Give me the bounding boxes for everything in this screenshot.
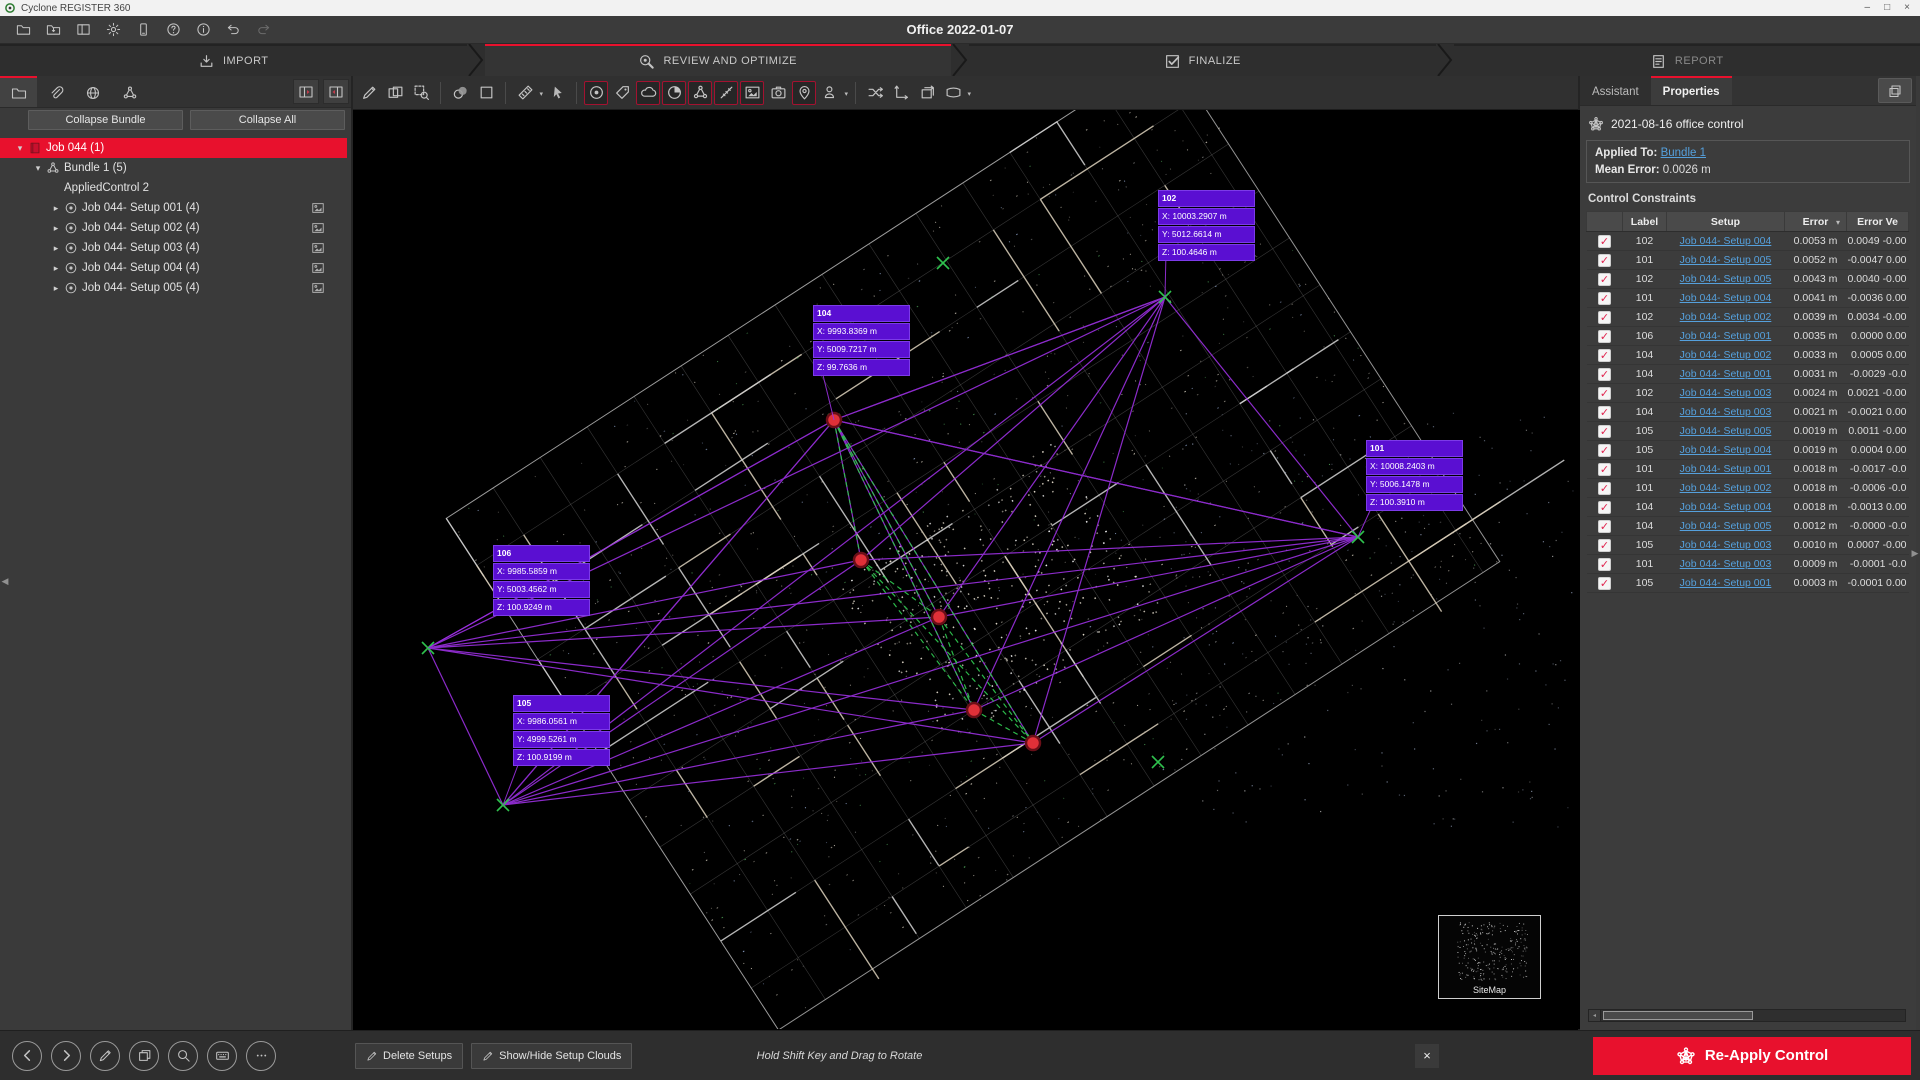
constraint-label: 105 bbox=[1623, 574, 1667, 593]
minimize-button[interactable]: – bbox=[1865, 0, 1871, 16]
constraint-label: 105 bbox=[1623, 422, 1667, 441]
constraint-label: 104 bbox=[1623, 498, 1667, 517]
column-header-Error[interactable]: Error▾ bbox=[1785, 212, 1847, 232]
measure-icon[interactable]: ▾ bbox=[513, 81, 537, 105]
redo-icon[interactable] bbox=[248, 18, 278, 42]
label-id-value: 105 bbox=[513, 695, 610, 712]
shuffle-links-icon[interactable] bbox=[863, 81, 887, 105]
settings-gear-icon[interactable] bbox=[98, 18, 128, 42]
cyclone-register-360-window: Cyclone REGISTER 360 – □ × Office 2022-0… bbox=[0, 0, 1920, 1080]
label-z-value: Z: 99.7636 m bbox=[813, 359, 910, 376]
constraint-error: 0.0043 m bbox=[1785, 270, 1847, 289]
constraint-setup-link[interactable]: Job 044- Setup 002 bbox=[1680, 349, 1772, 361]
camera-icon[interactable] bbox=[766, 81, 790, 105]
constraint-error: 0.0053 m bbox=[1785, 232, 1847, 251]
project-sidebar: Collapse Bundle Collapse All ▾Job 044 (1… bbox=[0, 76, 353, 1030]
tree-item-job-044-setup-004-4-[interactable]: ▸Job 044- Setup 004 (4) bbox=[0, 258, 351, 278]
constraint-setup-link[interactable]: Job 044- Setup 005 bbox=[1680, 520, 1772, 532]
geo-tab[interactable] bbox=[74, 76, 111, 107]
images-toggle-icon[interactable] bbox=[740, 81, 764, 105]
control-label-104[interactable]: 104X: 9993.8369 mY: 5009.7217 mZ: 99.763… bbox=[813, 305, 910, 377]
control-label-101[interactable]: 101X: 10008.2403 mY: 5006.1478 mZ: 100.3… bbox=[1366, 440, 1463, 512]
links-tab[interactable] bbox=[37, 76, 74, 107]
tree-item-job-044-setup-002-4-[interactable]: ▸Job 044- Setup 002 (4) bbox=[0, 218, 351, 238]
constraint-label: 104 bbox=[1623, 517, 1667, 536]
constraint-setup-link[interactable]: Job 044- Setup 003 bbox=[1680, 539, 1772, 551]
panel-hscrollbar[interactable]: ◂ bbox=[1588, 1009, 1906, 1022]
applied-info-box: Applied To: Bundle 1 Mean Error: 0.0026 … bbox=[1586, 140, 1910, 183]
constraint-row[interactable]: ✓106Job 044- Setup 0010.0035 m0.0000 0.0… bbox=[1587, 327, 1909, 346]
setup-point bbox=[854, 553, 868, 567]
bundle-tab[interactable] bbox=[111, 76, 148, 107]
label-x-value: X: 9993.8369 m bbox=[813, 323, 910, 340]
control-point-marker bbox=[937, 257, 949, 269]
constraint-row[interactable]: ✓101Job 044- Setup 0050.0052 m-0.0047 0.… bbox=[1587, 251, 1909, 270]
constraint-checkbox[interactable]: ✓ bbox=[1598, 254, 1611, 267]
setups-icon bbox=[62, 281, 80, 295]
constraint-row[interactable]: ✓104Job 044- Setup 0020.0033 m0.0005 0.0… bbox=[1587, 346, 1909, 365]
constraint-checkbox[interactable]: ✓ bbox=[1598, 577, 1611, 590]
tree-item-job-044-setup-001-4-[interactable]: ▸Job 044- Setup 001 (4) bbox=[0, 198, 351, 218]
workflow-bar: IMPORTREVIEW AND OPTIMIZEFINALIZEREPORT bbox=[0, 44, 1920, 76]
tree-caret[interactable]: ▸ bbox=[50, 203, 62, 214]
label-z-value: Z: 100.9249 m bbox=[493, 599, 590, 616]
tree-item-job-044-1-[interactable]: ▾Job 044 (1) bbox=[0, 138, 347, 158]
constraint-row[interactable]: ✓101Job 044- Setup 0010.0018 m-0.0017 -0… bbox=[1587, 460, 1909, 479]
constraint-setup-link[interactable]: Job 044- Setup 004 bbox=[1680, 501, 1772, 513]
constraint-setup-link[interactable]: Job 044- Setup 002 bbox=[1680, 482, 1772, 494]
undo-icon[interactable] bbox=[218, 18, 248, 42]
document-title: Office 2022-01-07 bbox=[0, 22, 1920, 37]
viewport-toolbar: ▾▾▾ bbox=[353, 76, 1578, 110]
constraint-checkbox[interactable]: ✓ bbox=[1598, 311, 1611, 324]
setup-image-icon[interactable] bbox=[311, 221, 325, 235]
constraint-error-vector: -0.0036 0.00 bbox=[1847, 289, 1909, 308]
tree-caret[interactable]: ▸ bbox=[50, 283, 62, 294]
constraint-row[interactable]: ✓105Job 044- Setup 0050.0019 m0.0011 -0.… bbox=[1587, 422, 1909, 441]
label-id-value: 104 bbox=[813, 305, 910, 322]
constraint-checkbox[interactable]: ✓ bbox=[1598, 501, 1611, 514]
workflow-tab-review-and-optimize[interactable]: REVIEW AND OPTIMIZE bbox=[485, 44, 952, 76]
app-title: Cyclone REGISTER 360 bbox=[21, 3, 131, 14]
tree-item-label: Bundle 1 (5) bbox=[62, 162, 127, 174]
constraint-error: 0.0019 m bbox=[1785, 422, 1847, 441]
help-icon[interactable] bbox=[158, 18, 188, 42]
constraint-checkbox[interactable]: ✓ bbox=[1598, 463, 1611, 476]
show-hide-setup-clouds-button[interactable]: Show/Hide Setup Clouds bbox=[471, 1043, 632, 1069]
control-label-102[interactable]: 102X: 10003.2907 mY: 5012.6614 mZ: 100.4… bbox=[1158, 190, 1255, 262]
constraint-error: 0.0052 m bbox=[1785, 251, 1847, 270]
project-explorer-tab[interactable] bbox=[0, 76, 37, 107]
tree-item-label: AppliedControl 2 bbox=[62, 182, 149, 194]
setups-icon bbox=[62, 201, 80, 215]
constraint-error-vector: 0.0004 0.00 bbox=[1847, 441, 1909, 460]
constraint-row[interactable]: ✓105Job 044- Setup 0030.0010 m0.0007 -0.… bbox=[1587, 536, 1909, 555]
storage-icon[interactable] bbox=[128, 18, 158, 42]
import-project-icon[interactable] bbox=[38, 18, 68, 42]
split-view-icon[interactable] bbox=[383, 81, 407, 105]
properties-tabstrip: AssistantProperties bbox=[1580, 76, 1916, 106]
menubar: Office 2022-01-07 bbox=[0, 16, 1920, 44]
control-label-106[interactable]: 106X: 9985.5859 mY: 5003.4562 mZ: 100.92… bbox=[493, 545, 590, 617]
delete-setups-button[interactable]: Delete Setups bbox=[355, 1043, 463, 1069]
constraint-error-vector: -0.0006 -0.0 bbox=[1847, 479, 1909, 498]
constraint-label: 101 bbox=[1623, 251, 1667, 270]
constraint-label: 105 bbox=[1623, 536, 1667, 555]
constraint-error: 0.0019 m bbox=[1785, 441, 1847, 460]
constraint-checkbox[interactable]: ✓ bbox=[1598, 520, 1611, 533]
bottom-bar: Delete Setups Show/Hide Setup Clouds Hol… bbox=[0, 1030, 1920, 1080]
constraint-checkbox[interactable]: ✓ bbox=[1598, 273, 1611, 286]
tree-caret[interactable]: ▾ bbox=[14, 143, 26, 154]
workflow-tab-label: REVIEW AND OPTIMIZE bbox=[663, 55, 797, 67]
back-button[interactable] bbox=[12, 1041, 42, 1071]
label-id-value: 101 bbox=[1366, 440, 1463, 457]
edit-button[interactable] bbox=[90, 1041, 120, 1071]
constraint-error-vector: -0.0017 -0.0 bbox=[1847, 460, 1909, 479]
review-icon bbox=[638, 53, 655, 70]
constraint-error-vector: 0.0011 -0.00 bbox=[1847, 422, 1909, 441]
rotate-image-icon[interactable] bbox=[915, 81, 939, 105]
tags-toggle-icon[interactable] bbox=[610, 81, 634, 105]
collapse-all-button[interactable]: Collapse All bbox=[190, 110, 345, 130]
constraint-error: 0.0024 m bbox=[1785, 384, 1847, 403]
setup-point bbox=[932, 610, 946, 624]
constraint-error-vector: -0.0001 -0.0 bbox=[1847, 555, 1909, 574]
constraint-label: 102 bbox=[1623, 384, 1667, 403]
select-cursor-icon[interactable] bbox=[545, 81, 569, 105]
constraint-error: 0.0009 m bbox=[1785, 555, 1847, 574]
tree-caret[interactable]: ▸ bbox=[50, 243, 62, 254]
constraint-row[interactable]: ✓101Job 044- Setup 0020.0018 m-0.0006 -0… bbox=[1587, 479, 1909, 498]
control-bundle-icon bbox=[1588, 116, 1604, 132]
tree-caret[interactable]: ▸ bbox=[50, 263, 62, 274]
constraint-setup-link[interactable]: Job 044- Setup 004 bbox=[1680, 235, 1772, 247]
expand-all-icon[interactable] bbox=[293, 79, 319, 104]
tree-item-job-044-setup-003-4-[interactable]: ▸Job 044- Setup 003 (4) bbox=[0, 238, 351, 258]
finalize-icon bbox=[1164, 53, 1181, 70]
workflow-tab-import[interactable]: IMPORT bbox=[0, 44, 467, 76]
constraint-row[interactable]: ✓104Job 044- Setup 0050.0012 m-0.0000 -0… bbox=[1587, 517, 1909, 536]
constraint-error: 0.0010 m bbox=[1785, 536, 1847, 555]
constraint-row[interactable]: ✓104Job 044- Setup 0040.0018 m-0.0013 0.… bbox=[1587, 498, 1909, 517]
tree-item-label: Job 044 (1) bbox=[44, 142, 104, 154]
constraint-checkbox[interactable]: ✓ bbox=[1598, 387, 1611, 400]
constraint-label: 104 bbox=[1623, 365, 1667, 384]
titlebar: Cyclone REGISTER 360 – □ × bbox=[0, 0, 1920, 16]
tree-item-label: Job 044- Setup 002 (4) bbox=[80, 222, 200, 234]
constraint-row[interactable]: ✓102Job 044- Setup 0020.0039 m0.0034 -0.… bbox=[1587, 308, 1909, 327]
point-cloud-canvas[interactable]: SiteMap 102X: 10003.2907 mY: 5012.6614 m… bbox=[353, 110, 1580, 1029]
mean-error-value: 0.0026 m bbox=[1663, 164, 1711, 176]
setup-image-icon[interactable] bbox=[311, 281, 325, 295]
tree-item-job-044-setup-005-4-[interactable]: ▸Job 044- Setup 005 (4) bbox=[0, 278, 351, 298]
constraint-checkbox[interactable]: ✓ bbox=[1598, 235, 1611, 248]
constraint-label: 101 bbox=[1623, 289, 1667, 308]
mean-error-label: Mean Error: bbox=[1595, 164, 1660, 176]
reapply-control-button[interactable]: Re-Apply Control bbox=[1593, 1037, 1911, 1075]
constraint-setup-link[interactable]: Job 044- Setup 001 bbox=[1680, 330, 1772, 342]
tree-item-label: Job 044- Setup 005 (4) bbox=[80, 282, 200, 294]
constraint-setup-link[interactable]: Job 044- Setup 003 bbox=[1680, 406, 1772, 418]
label-id-value: 106 bbox=[493, 545, 590, 562]
constraint-error-vector: -0.0000 -0.0 bbox=[1847, 517, 1909, 536]
constraint-setup-link[interactable]: Job 044- Setup 001 bbox=[1680, 368, 1772, 380]
column-header-Error Ve[interactable]: Error Ve bbox=[1847, 212, 1909, 232]
constraint-error: 0.0003 m bbox=[1785, 574, 1847, 593]
setup-image-icon[interactable] bbox=[311, 201, 325, 215]
label-y-value: Y: 5012.6614 m bbox=[1158, 226, 1255, 243]
workflow-tab-finalize[interactable]: FINALIZE bbox=[969, 44, 1436, 76]
chevron-divider bbox=[1436, 44, 1454, 76]
constraint-setup-link[interactable]: Job 044- Setup 005 bbox=[1680, 254, 1772, 266]
setup-point bbox=[1026, 736, 1040, 750]
column-header-Setup[interactable]: Setup bbox=[1667, 212, 1785, 232]
constraint-error-vector: 0.0005 0.00 bbox=[1847, 346, 1909, 365]
chevron-divider bbox=[951, 44, 969, 76]
book-icon bbox=[26, 141, 44, 155]
properties-panel: AssistantProperties 2021-08-16 office co… bbox=[1580, 76, 1916, 1030]
tree-item-appliedcontrol-2[interactable]: AppliedControl 2 bbox=[0, 178, 351, 198]
import-icon bbox=[198, 53, 215, 70]
constraint-error: 0.0018 m bbox=[1785, 479, 1847, 498]
tree-item-bundle-1-5-[interactable]: ▾Bundle 1 (5) bbox=[0, 158, 351, 178]
hscroll-thumb[interactable] bbox=[1603, 1011, 1753, 1020]
bundle-toggle-icon[interactable] bbox=[688, 81, 712, 105]
maximize-button[interactable]: □ bbox=[1884, 0, 1890, 16]
links-toggle-icon[interactable] bbox=[714, 81, 738, 105]
viewport: ▾▾▾ SiteMap 102X: 10003.2907 mY: 5012.66… bbox=[353, 76, 1580, 1030]
collapse-bundle-button[interactable]: Collapse Bundle bbox=[28, 110, 183, 130]
label-z-value: Z: 100.9199 m bbox=[513, 749, 610, 766]
column-header-check[interactable] bbox=[1587, 212, 1623, 232]
sitemap-inset[interactable]: SiteMap bbox=[1438, 915, 1541, 999]
toolbar-divider bbox=[576, 82, 577, 104]
constraint-error-vector: 0.0007 -0.00 bbox=[1847, 536, 1909, 555]
constraint-row[interactable]: ✓101Job 044- Setup 0040.0041 m-0.0036 0.… bbox=[1587, 289, 1909, 308]
forward-button[interactable] bbox=[51, 1041, 81, 1071]
control-constraints-title: Control Constraints bbox=[1588, 193, 1910, 205]
bundle-network-icon bbox=[1676, 1046, 1696, 1066]
tree-caret[interactable]: ▾ bbox=[32, 163, 44, 174]
workflow-tab-label: IMPORT bbox=[223, 55, 269, 67]
report-icon bbox=[1650, 53, 1667, 70]
control-point-marker bbox=[1152, 756, 1164, 768]
constraint-checkbox[interactable]: ✓ bbox=[1598, 349, 1611, 362]
constraint-setup-link[interactable]: Job 044- Setup 004 bbox=[1680, 292, 1772, 304]
constraint-label: 104 bbox=[1623, 346, 1667, 365]
label-x-value: X: 10003.2907 m bbox=[1158, 208, 1255, 225]
info-icon[interactable] bbox=[188, 18, 218, 42]
label-id-value: 102 bbox=[1158, 190, 1255, 207]
app-logo-icon bbox=[4, 2, 16, 14]
edit-badge-icon bbox=[366, 1050, 378, 1062]
constraint-setup-link[interactable]: Job 044- Setup 004 bbox=[1680, 444, 1772, 456]
axes-icon[interactable] bbox=[889, 81, 913, 105]
constraint-setup-link[interactable]: Job 044- Setup 001 bbox=[1680, 577, 1772, 589]
constraint-error: 0.0031 m bbox=[1785, 365, 1847, 384]
left-panel-collapse-arrow[interactable]: ◀ bbox=[0, 568, 10, 594]
panel-layout-icon[interactable] bbox=[1878, 78, 1912, 103]
label-y-value: Y: 5009.7217 m bbox=[813, 341, 910, 358]
right-panel-collapse-arrow[interactable]: ▶ bbox=[1910, 540, 1920, 566]
constraint-row[interactable]: ✓104Job 044- Setup 0010.0031 m-0.0029 -0… bbox=[1587, 365, 1909, 384]
constraint-label: 106 bbox=[1623, 327, 1667, 346]
constraint-row[interactable]: ✓102Job 044- Setup 0030.0024 m0.0021 -0.… bbox=[1587, 384, 1909, 403]
constraint-checkbox[interactable]: ✓ bbox=[1598, 539, 1611, 552]
setups-icon bbox=[62, 241, 80, 255]
constraint-error: 0.0018 m bbox=[1785, 460, 1847, 479]
constraint-checkbox[interactable]: ✓ bbox=[1598, 406, 1611, 419]
constraint-error: 0.0039 m bbox=[1785, 308, 1847, 327]
tree-item-label: Job 044- Setup 004 (4) bbox=[80, 262, 200, 274]
constraint-setup-link[interactable]: Job 044- Setup 003 bbox=[1680, 558, 1772, 570]
tree-item-label: Job 044- Setup 003 (4) bbox=[80, 242, 200, 254]
label-x-value: X: 9985.5859 m bbox=[493, 563, 590, 580]
constraint-label: 105 bbox=[1623, 441, 1667, 460]
constraint-error: 0.0018 m bbox=[1785, 498, 1847, 517]
keyboard-button[interactable] bbox=[207, 1041, 237, 1071]
constraint-setup-link[interactable]: Job 044- Setup 003 bbox=[1680, 387, 1772, 399]
constraint-error-vector: -0.0047 0.00 bbox=[1847, 251, 1909, 270]
constraint-row[interactable]: ✓102Job 044- Setup 0050.0043 m0.0040 -0.… bbox=[1587, 270, 1909, 289]
dismiss-hint-button[interactable]: × bbox=[1415, 1044, 1439, 1068]
toolbar-divider bbox=[505, 82, 506, 104]
constraint-checkbox[interactable]: ✓ bbox=[1598, 482, 1611, 495]
constraint-row[interactable]: ✓104Job 044- Setup 0030.0021 m-0.0021 0.… bbox=[1587, 403, 1909, 422]
applied-to-link[interactable]: Bundle 1 bbox=[1661, 147, 1706, 159]
constraint-checkbox[interactable]: ✓ bbox=[1598, 425, 1611, 438]
nav-buttons bbox=[0, 1041, 355, 1071]
quality-toggle-icon[interactable] bbox=[662, 81, 686, 105]
label-z-value: Z: 100.4646 m bbox=[1158, 244, 1255, 261]
toolbar-divider bbox=[440, 82, 441, 104]
constraint-error-vector: 0.0034 -0.00 bbox=[1847, 308, 1909, 327]
panel-tab-properties[interactable]: Properties bbox=[1651, 76, 1732, 105]
column-header-Label[interactable]: Label bbox=[1623, 212, 1667, 232]
setups-icon bbox=[62, 261, 80, 275]
workflow-tab-label: REPORT bbox=[1675, 55, 1724, 67]
sidebar-tabstrip bbox=[0, 76, 351, 108]
constraint-checkbox[interactable]: ✓ bbox=[1598, 368, 1611, 381]
constraint-error: 0.0021 m bbox=[1785, 403, 1847, 422]
constraint-label: 102 bbox=[1623, 270, 1667, 289]
constraint-error-vector: -0.0013 0.00 bbox=[1847, 498, 1909, 517]
label-y-value: Y: 5003.4562 m bbox=[493, 581, 590, 598]
constraint-error-vector: 0.0049 -0.00 bbox=[1847, 232, 1909, 251]
constraint-error: 0.0041 m bbox=[1785, 289, 1847, 308]
applied-to-label: Applied To: bbox=[1595, 147, 1657, 159]
project-tree: ▾Job 044 (1)▾Bundle 1 (5)AppliedControl … bbox=[0, 132, 351, 1030]
constraint-checkbox[interactable]: ✓ bbox=[1598, 330, 1611, 343]
control-label-105[interactable]: 105X: 9986.0561 mY: 4999.5261 mZ: 100.91… bbox=[513, 695, 610, 767]
search-button[interactable] bbox=[168, 1041, 198, 1071]
constraint-row[interactable]: ✓102Job 044- Setup 0040.0053 m0.0049 -0.… bbox=[1587, 232, 1909, 251]
cloud-overlap-icon[interactable] bbox=[448, 81, 472, 105]
zoom-region-icon[interactable] bbox=[409, 81, 433, 105]
setup-image-icon[interactable] bbox=[311, 241, 325, 255]
constraint-label: 101 bbox=[1623, 479, 1667, 498]
constraint-error-vector: 0.0021 -0.00 bbox=[1847, 384, 1909, 403]
open-project-icon[interactable] bbox=[8, 18, 38, 42]
bundle-icon bbox=[44, 161, 62, 175]
constraint-row[interactable]: ✓105Job 044- Setup 0040.0019 m0.0004 0.0… bbox=[1587, 441, 1909, 460]
workflow-tab-report[interactable]: REPORT bbox=[1454, 44, 1920, 76]
control-name: 2021-08-16 office control bbox=[1611, 117, 1744, 131]
constraint-setup-link[interactable]: Job 044- Setup 005 bbox=[1680, 273, 1772, 285]
edit-badge-icon bbox=[482, 1050, 494, 1062]
constraint-error-vector: 0.0000 0.00 bbox=[1847, 327, 1909, 346]
constraint-error-vector: 0.0040 -0.00 bbox=[1847, 270, 1909, 289]
constraint-setup-link[interactable]: Job 044- Setup 002 bbox=[1680, 311, 1772, 323]
constraint-error-vector: -0.0001 0.00 bbox=[1847, 574, 1909, 593]
adjust-icon[interactable] bbox=[357, 81, 381, 105]
geotags-toggle-icon[interactable] bbox=[792, 81, 816, 105]
close-button[interactable]: × bbox=[1904, 0, 1910, 16]
label-z-value: Z: 100.3910 m bbox=[1366, 494, 1463, 511]
constraint-checkbox[interactable]: ✓ bbox=[1598, 558, 1611, 571]
constraint-checkbox[interactable]: ✓ bbox=[1598, 292, 1611, 305]
constraint-row[interactable]: ✓101Job 044- Setup 0030.0009 m-0.0001 -0… bbox=[1587, 555, 1909, 574]
pano-icon[interactable]: ▾ bbox=[941, 81, 965, 105]
hscroll-left-arrow[interactable]: ◂ bbox=[1589, 1010, 1601, 1021]
label-y-value: Y: 4999.5261 m bbox=[513, 731, 610, 748]
constraint-row[interactable]: ✓105Job 044- Setup 0010.0003 m-0.0001 0.… bbox=[1587, 574, 1909, 593]
copy-button[interactable] bbox=[129, 1041, 159, 1071]
people-icon[interactable]: ▾ bbox=[818, 81, 842, 105]
toolbar-divider bbox=[855, 82, 856, 104]
more-button[interactable] bbox=[246, 1041, 276, 1071]
workflow-tab-label: FINALIZE bbox=[1189, 55, 1241, 67]
constraint-error: 0.0035 m bbox=[1785, 327, 1847, 346]
panels-icon[interactable] bbox=[68, 18, 98, 42]
label-x-value: X: 10008.2403 m bbox=[1366, 458, 1463, 475]
tree-item-label: Job 044- Setup 001 (4) bbox=[80, 202, 200, 214]
constraint-error: 0.0033 m bbox=[1785, 346, 1847, 365]
label-x-value: X: 9986.0561 m bbox=[513, 713, 610, 730]
constraint-setup-link[interactable]: Job 044- Setup 005 bbox=[1680, 425, 1772, 437]
constraint-label: 101 bbox=[1623, 460, 1667, 479]
label-y-value: Y: 5006.1478 m bbox=[1366, 476, 1463, 493]
constraint-label: 102 bbox=[1623, 232, 1667, 251]
constraint-label: 102 bbox=[1623, 308, 1667, 327]
panel-tab-assistant[interactable]: Assistant bbox=[1580, 76, 1651, 105]
setups-icon bbox=[62, 221, 80, 235]
constraints-table: LabelSetupError▾Error Ve ✓102Job 044- Se… bbox=[1586, 211, 1909, 593]
constraint-label: 101 bbox=[1623, 555, 1667, 574]
chevron-divider bbox=[467, 44, 485, 76]
clouds-toggle-icon[interactable] bbox=[636, 81, 660, 105]
square-select-icon[interactable] bbox=[474, 81, 498, 105]
constraint-label: 104 bbox=[1623, 403, 1667, 422]
tree-caret[interactable]: ▸ bbox=[50, 223, 62, 234]
constraint-setup-link[interactable]: Job 044- Setup 001 bbox=[1680, 463, 1772, 475]
constraint-error: 0.0012 m bbox=[1785, 517, 1847, 536]
constraint-checkbox[interactable]: ✓ bbox=[1598, 444, 1611, 457]
constraint-error-vector: -0.0029 -0.0 bbox=[1847, 365, 1909, 384]
collapse-all-icon[interactable] bbox=[323, 79, 349, 104]
setups-toggle-icon[interactable] bbox=[584, 81, 608, 105]
setup-point bbox=[967, 703, 981, 717]
setup-image-icon[interactable] bbox=[311, 261, 325, 275]
constraint-error-vector: -0.0021 0.00 bbox=[1847, 403, 1909, 422]
